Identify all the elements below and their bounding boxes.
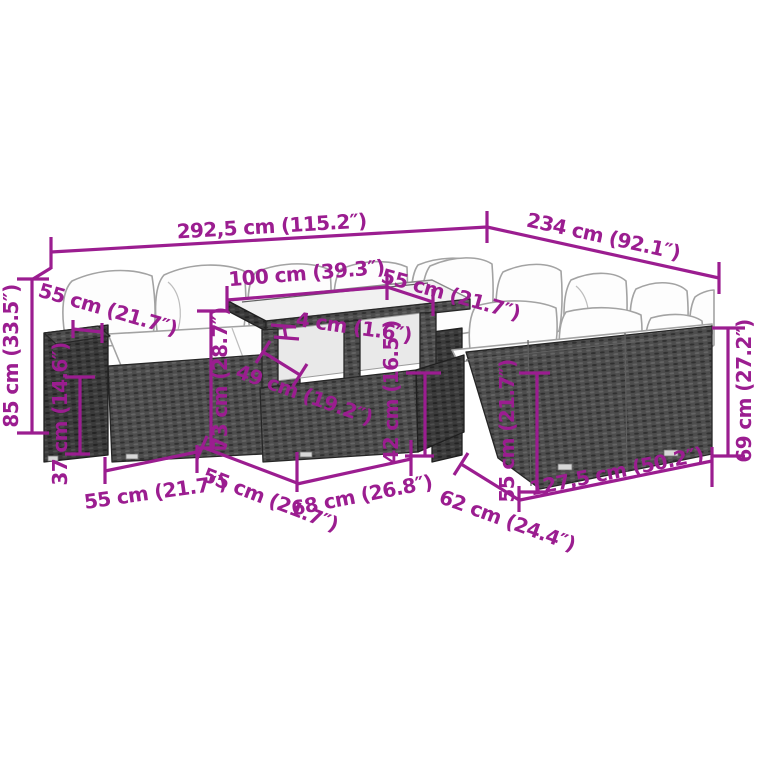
dim-total-height-label: 85 cm (33.5″) xyxy=(0,284,23,427)
dim-table-height-label: 73 cm (28.7″) xyxy=(208,307,232,450)
dim-seat-height-label: 37 cm (14.6″) xyxy=(48,342,72,485)
dim-connector xyxy=(284,326,286,338)
furniture-dimension-diagram: 292,5 cm (115.2″) 234 cm (92.1″) 100 cm … xyxy=(0,0,767,767)
table-post xyxy=(420,312,436,372)
dim-right-backrest-height-label: 55 cm (21.7″) xyxy=(495,359,519,502)
dim-right-side-height-label: 69 cm (27.2″) xyxy=(732,319,756,462)
diagram-canvas: 292,5 cm (115.2″) 234 cm (92.1″) 100 cm … xyxy=(0,0,767,767)
sofa-foot xyxy=(126,454,138,459)
dim-shelf-height-label: 42 cm (16.5″) xyxy=(379,320,403,463)
table-foot xyxy=(300,452,312,457)
